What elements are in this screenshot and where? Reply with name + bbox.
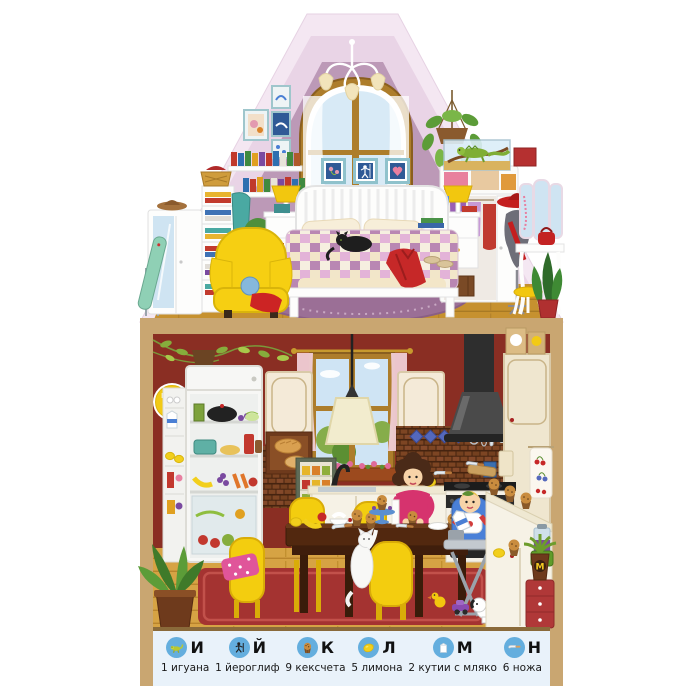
wall-picture-left — [244, 110, 268, 140]
knife-icon — [504, 637, 525, 658]
cherry-towel — [528, 447, 554, 498]
dollhouse-scene: К — [0, 0, 700, 700]
legend-count: 2 кутии с мляко — [408, 662, 497, 674]
hidden-letter-m[interactable]: М — [536, 563, 545, 573]
house-frame-left — [140, 318, 153, 686]
legend-letter: Й — [253, 640, 266, 656]
house-frame-right — [550, 318, 563, 686]
legend-count: 5 лимона — [351, 662, 402, 674]
cereal-box-2 — [528, 332, 545, 354]
plate — [429, 523, 448, 530]
lemon[interactable] — [175, 455, 184, 462]
fridge — [163, 366, 262, 562]
hieroglyph-icon — [229, 637, 250, 658]
legend-item-knife: Н 6 ножа — [503, 637, 542, 674]
storage-box-orange — [501, 174, 516, 190]
apple — [318, 513, 327, 522]
legend-item-cupcake: К 9 кексчета — [285, 637, 345, 674]
legend: И 1 игуана Й 1 йероглиф — [153, 631, 550, 686]
legend-letter: К — [321, 640, 334, 656]
lemon[interactable] — [494, 549, 505, 557]
high-chair-tray — [444, 540, 490, 549]
ketchup-bottle — [167, 472, 174, 488]
sink-basin — [318, 487, 376, 492]
kitchen: К — [138, 328, 556, 631]
hat-on-wardrobe — [157, 200, 187, 211]
legend-count: 1 йероглиф — [215, 662, 279, 674]
cupcake-icon — [297, 637, 318, 658]
legend-letter: И — [190, 640, 203, 656]
wardrobe-left — [137, 200, 202, 316]
teal-box — [274, 204, 290, 213]
flowers-picture — [326, 163, 341, 179]
legend-letter: Н — [528, 640, 541, 656]
lemon-icon — [358, 637, 379, 658]
bed — [286, 186, 458, 317]
floor-divider-band — [140, 318, 563, 334]
red-box — [514, 148, 536, 166]
footboard — [286, 288, 458, 297]
legend-item-lemon: Л 5 лимона — [351, 637, 402, 674]
milk-carton[interactable] — [167, 411, 177, 428]
yellow-armchair — [210, 228, 292, 322]
hanging-dress-red — [483, 204, 496, 250]
attic-bedroom — [137, 14, 564, 322]
legend-letter: Л — [382, 640, 395, 656]
legend-count: 9 кексчета — [285, 662, 345, 674]
legend-count: 6 ножа — [503, 662, 542, 674]
cupcake[interactable] — [377, 495, 387, 510]
lemon[interactable] — [166, 452, 175, 459]
legend-count: 1 игуана — [161, 662, 209, 674]
hieroglyph-picture[interactable] — [358, 163, 373, 179]
terrarium — [444, 140, 510, 170]
milk-carton-icon — [433, 637, 454, 658]
red-book — [462, 206, 477, 212]
lemon[interactable] — [291, 518, 302, 526]
blue-ball — [241, 277, 259, 295]
pot-on-tray — [448, 530, 464, 541]
legend-item-hieroglyph: Й 1 йероглиф — [215, 637, 279, 674]
picture-book-page: К — [0, 0, 700, 700]
iguana-icon — [166, 637, 187, 658]
books-on-bed — [418, 218, 444, 228]
legend-item-milk: М 2 кутии с мляко — [408, 637, 497, 674]
cereal-box — [506, 328, 526, 354]
storage-box-beige — [471, 170, 499, 190]
legend-letter: М — [457, 640, 473, 656]
canister — [499, 451, 513, 476]
legend-item-iguana: И 1 игуана — [161, 637, 209, 674]
wall-picture-stack — [272, 86, 290, 158]
cream-bowl — [330, 514, 348, 525]
pictures-above-bed — [321, 158, 410, 184]
